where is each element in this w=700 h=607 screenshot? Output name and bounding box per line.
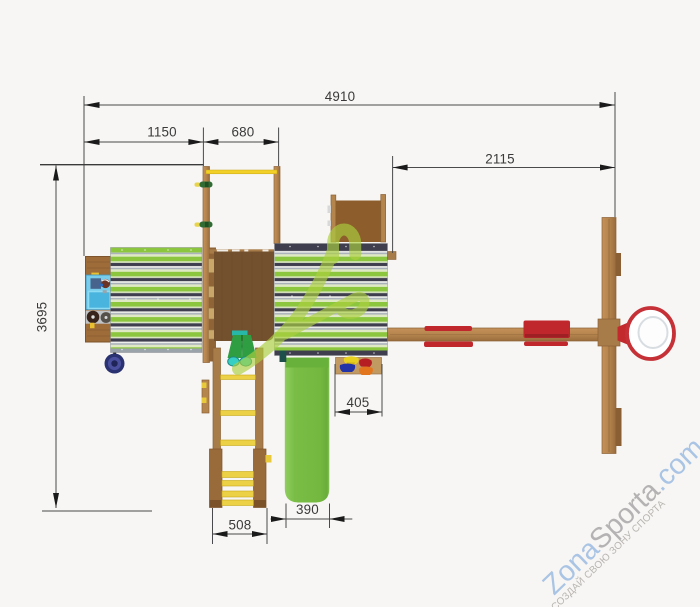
svg-text:405: 405 xyxy=(347,395,370,410)
svg-text:2115: 2115 xyxy=(485,152,515,167)
svg-text:680: 680 xyxy=(232,125,255,140)
svg-text:390: 390 xyxy=(296,502,319,517)
svg-text:4910: 4910 xyxy=(325,89,356,104)
svg-text:508: 508 xyxy=(229,518,252,533)
svg-text:3695: 3695 xyxy=(35,302,50,333)
svg-text:1150: 1150 xyxy=(147,125,177,140)
